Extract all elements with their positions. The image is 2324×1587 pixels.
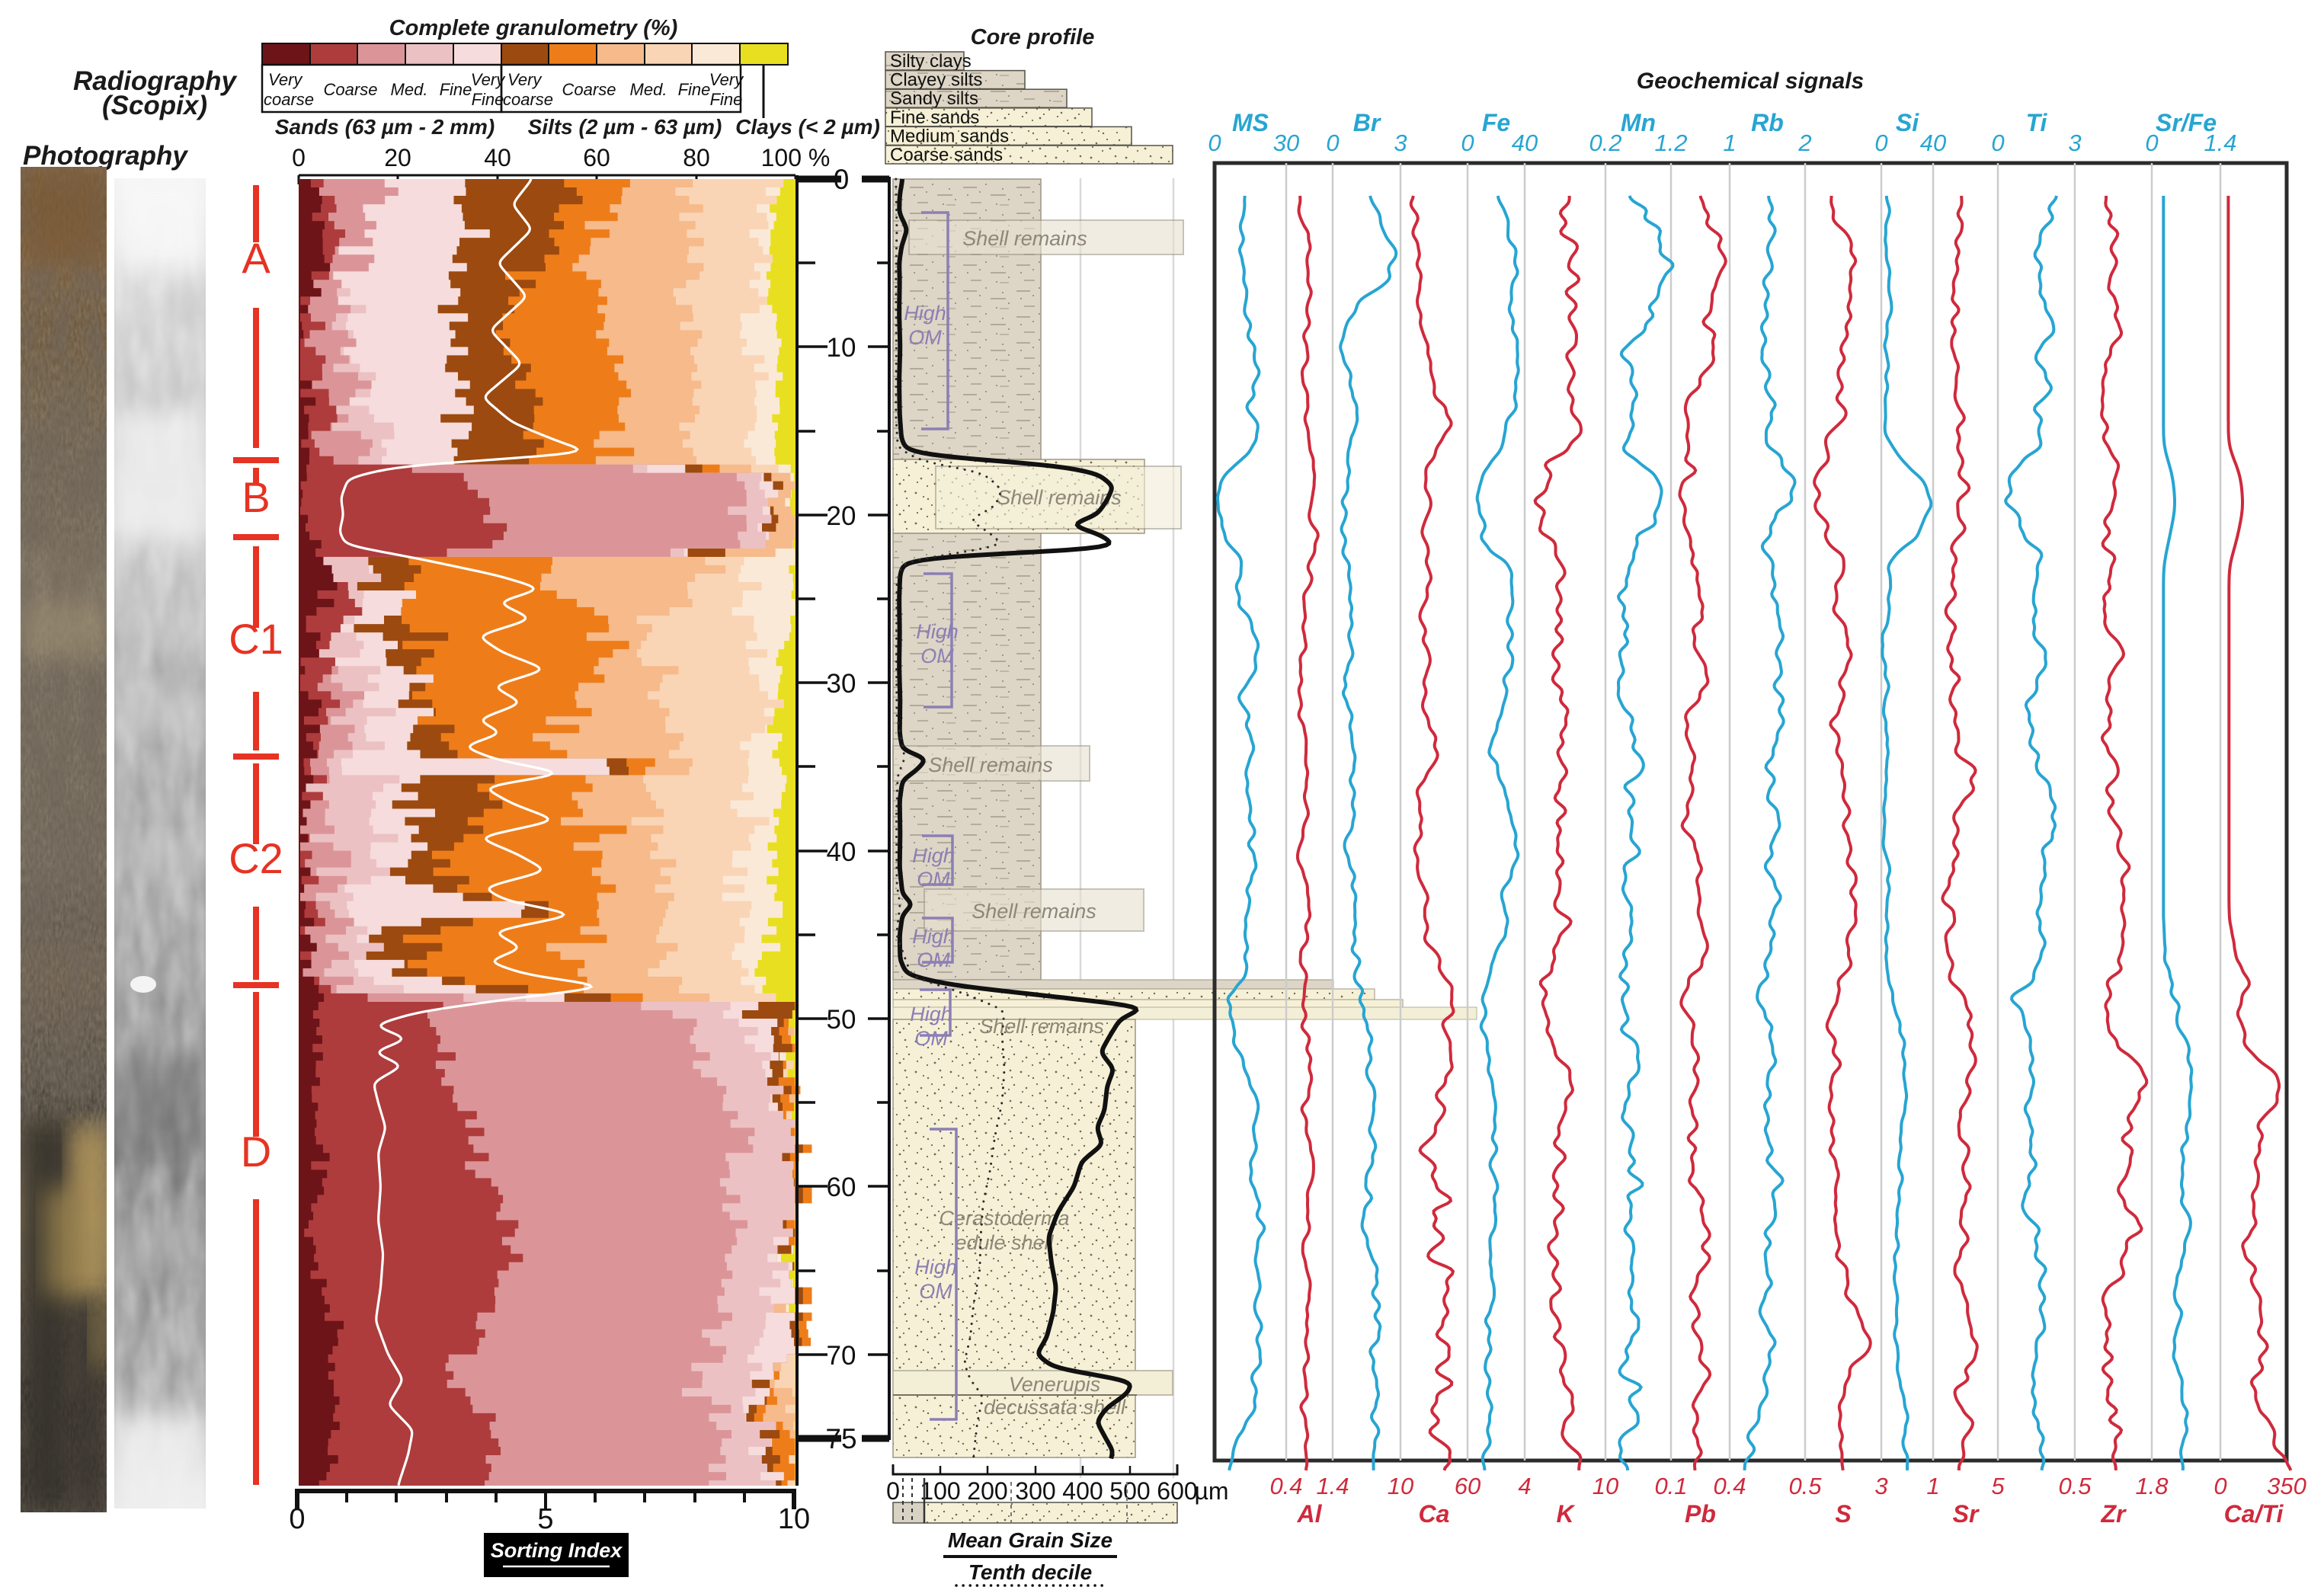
svg-text:1.4: 1.4 — [2204, 130, 2236, 156]
svg-text:0: 0 — [292, 144, 306, 171]
svg-text:75: 75 — [825, 1423, 856, 1454]
svg-text:0.5: 0.5 — [1788, 1473, 1822, 1499]
svg-text:5: 5 — [1991, 1473, 2005, 1499]
svg-text:1.4: 1.4 — [1316, 1473, 1349, 1499]
svg-text:0: 0 — [1326, 130, 1339, 156]
svg-text:3: 3 — [1394, 130, 1407, 156]
svg-text:(Scopix): (Scopix) — [102, 91, 207, 120]
svg-text:0.5: 0.5 — [2058, 1473, 2092, 1499]
svg-text:MS: MS — [1232, 109, 1269, 136]
svg-text:OM: OM — [914, 1027, 948, 1050]
svg-text:Ti: Ti — [2026, 109, 2048, 136]
svg-text:OM: OM — [917, 949, 950, 971]
svg-text:0.4: 0.4 — [1269, 1473, 1302, 1499]
svg-text:B: B — [242, 473, 270, 521]
svg-text:High: High — [904, 302, 946, 325]
svg-text:D: D — [241, 1128, 271, 1176]
svg-text:Shell remains: Shell remains — [979, 1015, 1104, 1038]
svg-text:Fe: Fe — [1482, 109, 1510, 136]
svg-text:Silts (2 µm - 63 µm): Silts (2 µm - 63 µm) — [528, 115, 722, 139]
svg-text:Ca: Ca — [1419, 1500, 1450, 1528]
svg-text:Venerupis: Venerupis — [1009, 1373, 1101, 1396]
svg-text:OM: OM — [908, 326, 942, 349]
svg-text:Coarse: Coarse — [562, 80, 616, 99]
svg-text:600: 600 — [1157, 1477, 1197, 1505]
svg-text:3: 3 — [1874, 1473, 1887, 1499]
svg-text:High: High — [914, 1256, 957, 1278]
svg-text:Pb: Pb — [1685, 1500, 1716, 1528]
svg-text:20: 20 — [384, 144, 411, 171]
svg-text:S: S — [1835, 1500, 1852, 1528]
svg-text:C1: C1 — [229, 615, 283, 663]
svg-text:0: 0 — [2145, 130, 2158, 156]
svg-text:Med.: Med. — [630, 80, 667, 99]
svg-text:10: 10 — [1593, 1473, 1618, 1499]
svg-text:OM: OM — [919, 1280, 952, 1303]
svg-text:C2: C2 — [229, 834, 283, 882]
svg-text:Shell remains: Shell remains — [928, 754, 1053, 776]
svg-text:edule shell: edule shell — [955, 1231, 1054, 1254]
svg-text:10: 10 — [827, 333, 856, 363]
svg-text:0: 0 — [1208, 130, 1221, 156]
svg-text:0: 0 — [1874, 130, 1887, 156]
svg-text:40: 40 — [827, 837, 856, 867]
svg-text:Coarse: Coarse — [324, 80, 378, 99]
svg-text:60: 60 — [1455, 1473, 1481, 1499]
svg-text:0: 0 — [886, 1477, 900, 1505]
svg-text:A: A — [242, 234, 270, 282]
svg-text:Sr: Sr — [1953, 1500, 1980, 1528]
svg-text:4: 4 — [1518, 1473, 1531, 1499]
svg-text:0: 0 — [2214, 1473, 2226, 1499]
svg-text:10: 10 — [778, 1503, 810, 1535]
svg-text:coarse: coarse — [264, 90, 314, 109]
svg-text:70: 70 — [827, 1341, 856, 1371]
svg-text:40: 40 — [484, 144, 511, 171]
svg-text:1: 1 — [1723, 130, 1736, 156]
svg-text:40: 40 — [1512, 130, 1538, 156]
svg-text:Cerastoderma: Cerastoderma — [939, 1207, 1069, 1230]
svg-text:Fine: Fine — [710, 90, 743, 109]
svg-text:µm: µm — [1194, 1477, 1228, 1505]
svg-text:60: 60 — [583, 144, 610, 171]
svg-text:High: High — [916, 620, 959, 643]
svg-text:0.4: 0.4 — [1713, 1473, 1746, 1499]
svg-text:Very: Very — [709, 70, 744, 89]
svg-text:Si: Si — [1896, 109, 1919, 136]
svg-text:Br: Br — [1353, 109, 1381, 136]
svg-text:300: 300 — [1015, 1477, 1055, 1505]
svg-text:0.2: 0.2 — [1589, 130, 1621, 156]
svg-text:decussata shell: decussata shell — [984, 1396, 1126, 1419]
svg-text:Silty clays: Silty clays — [890, 51, 972, 72]
svg-text:Sandy silts: Sandy silts — [890, 88, 978, 109]
svg-text:Al: Al — [1297, 1500, 1323, 1528]
svg-text:Photography: Photography — [23, 141, 188, 171]
svg-text:350: 350 — [2267, 1473, 2306, 1499]
svg-text:60: 60 — [827, 1173, 856, 1202]
svg-text:50: 50 — [827, 1005, 856, 1035]
svg-text:OM: OM — [920, 645, 954, 667]
svg-text:1: 1 — [1926, 1473, 1939, 1499]
svg-text:Coarse sands: Coarse sands — [890, 145, 1003, 165]
svg-text:100 %: 100 % — [761, 144, 831, 171]
svg-text:Fine: Fine — [472, 90, 504, 109]
svg-text:Clays (< 2 µm): Clays (< 2 µm) — [735, 115, 880, 139]
svg-text:Very: Very — [507, 70, 543, 89]
svg-text:3: 3 — [2068, 130, 2081, 156]
svg-text:High: High — [910, 1003, 952, 1025]
svg-text:Mean Grain Size: Mean Grain Size — [948, 1528, 1112, 1552]
svg-text:1.8: 1.8 — [2135, 1473, 2169, 1499]
svg-text:0: 0 — [289, 1503, 305, 1535]
svg-text:Medium sands: Medium sands — [890, 126, 1009, 146]
svg-text:100: 100 — [920, 1477, 960, 1505]
svg-text:30: 30 — [827, 669, 856, 699]
svg-text:40: 40 — [1920, 130, 1946, 156]
svg-text:Very: Very — [471, 70, 506, 89]
svg-text:Mn: Mn — [1621, 109, 1656, 136]
svg-text:Geochemical signals: Geochemical signals — [1637, 69, 1864, 94]
svg-text:Fine: Fine — [678, 80, 711, 99]
svg-text:Tenth decile: Tenth decile — [968, 1560, 1092, 1584]
svg-text:High: High — [912, 925, 955, 948]
svg-text:Shell remains: Shell remains — [972, 900, 1096, 923]
svg-text:High: High — [912, 844, 955, 867]
svg-text:5: 5 — [537, 1503, 553, 1535]
svg-text:Fine sands: Fine sands — [890, 107, 979, 128]
svg-text:20: 20 — [827, 501, 856, 531]
svg-text:0: 0 — [834, 164, 850, 195]
svg-text:200: 200 — [967, 1477, 1007, 1505]
svg-text:Complete granulometry (%): Complete granulometry (%) — [389, 16, 678, 40]
svg-text:Sands (63 µm - 2 mm): Sands (63 µm - 2 mm) — [275, 115, 495, 139]
svg-text:OM: OM — [917, 868, 950, 891]
svg-text:80: 80 — [683, 144, 710, 171]
svg-text:1.2: 1.2 — [1654, 130, 1687, 156]
svg-text:Zr: Zr — [2101, 1500, 2127, 1528]
svg-text:coarse: coarse — [503, 90, 553, 109]
svg-text:2: 2 — [1797, 130, 1811, 156]
svg-text:Rb: Rb — [1751, 109, 1784, 136]
svg-text:Shell remains: Shell remains — [962, 227, 1087, 250]
svg-text:10: 10 — [1388, 1473, 1413, 1499]
svg-text:Clayey silts: Clayey silts — [890, 70, 982, 91]
svg-text:0: 0 — [1461, 130, 1474, 156]
svg-text:500: 500 — [1109, 1477, 1150, 1505]
svg-text:Sorting Index: Sorting Index — [491, 1539, 623, 1562]
svg-text:K: K — [1556, 1500, 1576, 1528]
svg-text:30: 30 — [1273, 130, 1299, 156]
svg-text:Fine: Fine — [440, 80, 472, 99]
svg-text:Med.: Med. — [391, 80, 428, 99]
svg-text:Very: Very — [268, 70, 303, 89]
svg-text:400: 400 — [1062, 1477, 1103, 1505]
svg-text:0.1: 0.1 — [1654, 1473, 1687, 1499]
svg-text:Ca/Ti: Ca/Ti — [2224, 1500, 2284, 1528]
svg-text:Core profile: Core profile — [971, 25, 1095, 50]
svg-text:0: 0 — [1991, 130, 2004, 156]
